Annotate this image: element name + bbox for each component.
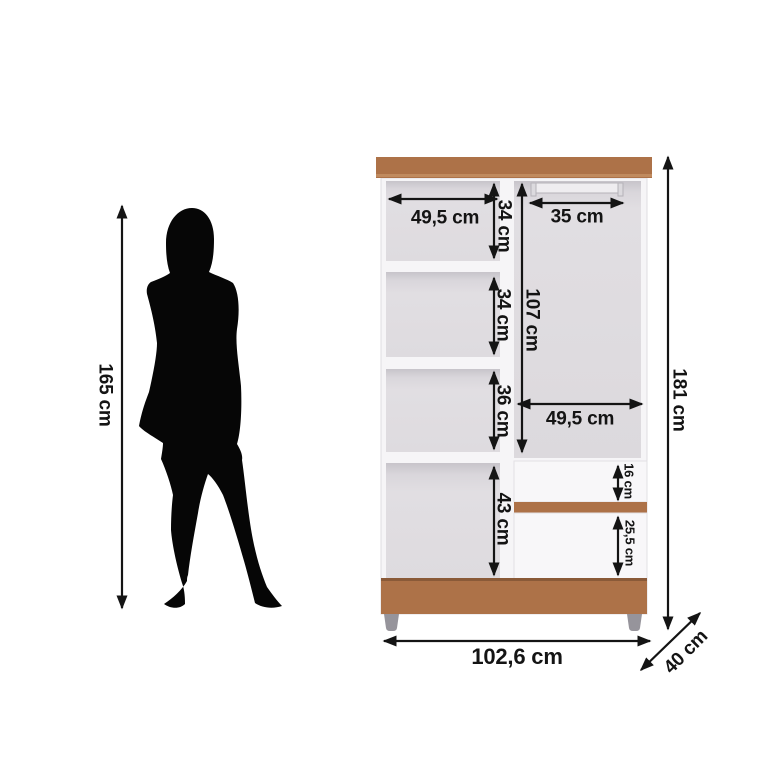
wardrobe-foot-left bbox=[384, 614, 399, 631]
section-1-label: 34 cm bbox=[495, 200, 514, 253]
top-drawer-label: 16 cm bbox=[623, 463, 636, 499]
shelf-opening-3 bbox=[386, 369, 500, 452]
dimension-diagram: 165 cm 49,5 cm 34 cm 35 cm 107 cm 34 cm … bbox=[0, 0, 768, 768]
person-height-label: 165 cm bbox=[96, 363, 115, 426]
shelf-opening-4 bbox=[386, 463, 500, 578]
hanging-height-label: 107 cm bbox=[523, 288, 542, 351]
shelf-opening-2 bbox=[386, 272, 500, 357]
overall-height-label: 181 cm bbox=[670, 368, 689, 431]
wardrobe-foot-right bbox=[627, 614, 642, 631]
woman-silhouette bbox=[139, 208, 282, 608]
section-4-label: 43 cm bbox=[494, 493, 513, 546]
wardrobe-plinth bbox=[381, 578, 647, 614]
section-3-label: 36 cm bbox=[494, 385, 513, 438]
section-2-label: 34 cm bbox=[494, 289, 513, 342]
rod-width-label: 35 cm bbox=[551, 208, 604, 227]
drawer-divider-strip bbox=[514, 502, 647, 513]
bottom-drawer-label: 25,5 cm bbox=[624, 520, 637, 566]
wardrobe-top-panel bbox=[376, 157, 652, 178]
overall-width-label: 102,6 cm bbox=[471, 646, 562, 668]
right-inner-width-label: 49,5 cm bbox=[546, 410, 614, 429]
left-inner-width-label: 49,5 cm bbox=[411, 209, 479, 228]
